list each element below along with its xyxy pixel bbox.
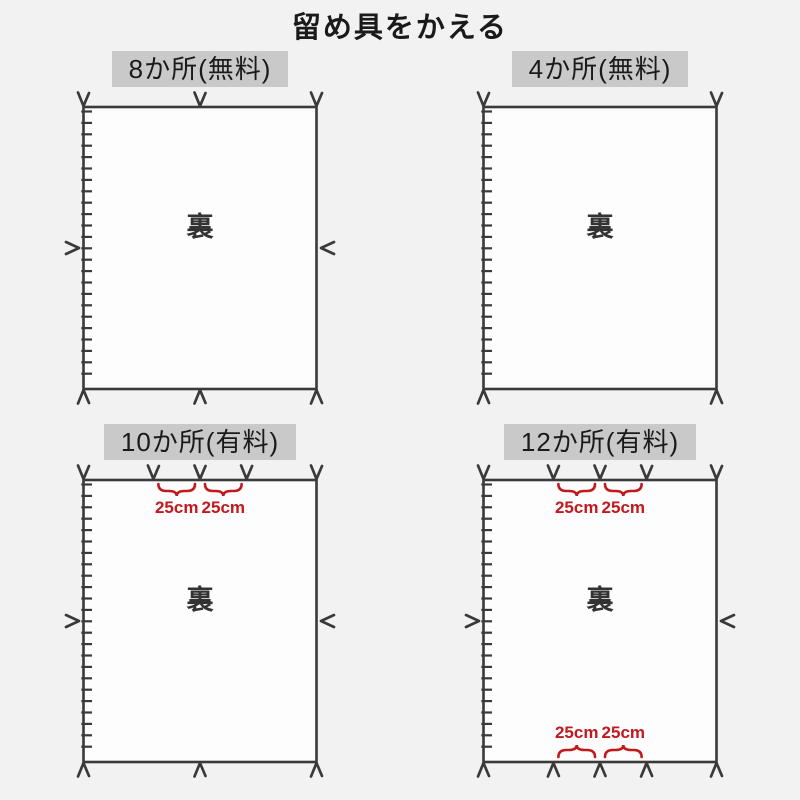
fastener-mark-top bbox=[711, 93, 722, 107]
dimension-label: 25cm bbox=[602, 498, 645, 517]
fastener-mark-left bbox=[66, 242, 79, 254]
panel-diagram-10-places: 裏25cm25cm bbox=[0, 460, 400, 792]
dimension-label: 25cm bbox=[202, 498, 245, 517]
fastener-mark-bottom bbox=[641, 763, 652, 777]
fastener-mark-top bbox=[478, 466, 489, 480]
fastener-mark-bottom bbox=[548, 763, 559, 777]
fastener-mark-bottom bbox=[78, 390, 89, 404]
fastener-mark-bottom bbox=[711, 390, 722, 404]
cover-back-illustration: 裏 bbox=[400, 87, 800, 419]
fastener-mark-top bbox=[711, 466, 722, 480]
back-side-label: 裏 bbox=[586, 211, 615, 242]
page-title: 留め具をかえる bbox=[0, 4, 800, 46]
fastener-mark-top bbox=[78, 466, 89, 480]
fastener-mark-top bbox=[195, 466, 206, 480]
panel-header-12-places: 12か所(有料) bbox=[504, 424, 696, 460]
cover-back-outline bbox=[484, 480, 717, 762]
cover-back-illustration: 裏25cm25cm25cm25cm bbox=[400, 460, 800, 792]
fastener-mark-bottom bbox=[711, 763, 722, 777]
fastener-mark-top bbox=[641, 466, 652, 480]
cover-back-illustration: 裏 bbox=[0, 87, 400, 419]
fastener-mark-bottom bbox=[311, 390, 322, 404]
panel-diagram-12-places: 裏25cm25cm25cm25cm bbox=[400, 460, 800, 792]
panel-header-4-places: 4か所(無料) bbox=[512, 51, 689, 87]
back-side-label: 裏 bbox=[186, 584, 215, 615]
panel-12-places: 12か所(有料) 裏25cm25cm25cm25cm bbox=[400, 418, 800, 796]
panel-diagram-8-places: 裏 bbox=[0, 87, 400, 419]
back-side-label: 裏 bbox=[586, 584, 615, 615]
fastener-mark-top bbox=[311, 93, 322, 107]
cover-back-illustration: 裏25cm25cm bbox=[0, 460, 400, 792]
fastener-mark-top bbox=[241, 466, 252, 480]
fastener-mark-bottom bbox=[195, 763, 206, 777]
panel-10-places: 10か所(有料) 裏25cm25cm bbox=[0, 418, 400, 796]
fastener-mark-bottom bbox=[478, 390, 489, 404]
fastener-mark-bottom bbox=[595, 763, 606, 777]
fastener-mark-top bbox=[148, 466, 159, 480]
cover-back-outline bbox=[84, 480, 317, 762]
fastener-mark-right bbox=[321, 242, 334, 254]
fastener-mark-top bbox=[78, 93, 89, 107]
panel-4-places: 4か所(無料) 裏 bbox=[400, 45, 800, 423]
cover-back-outline bbox=[484, 107, 717, 389]
back-side-label: 裏 bbox=[186, 211, 215, 242]
dimension-label: 25cm bbox=[155, 498, 198, 517]
panel-8-places: 8か所(無料) 裏 bbox=[0, 45, 400, 423]
fastener-mark-top bbox=[311, 466, 322, 480]
fastener-mark-left bbox=[466, 615, 479, 627]
fastener-mark-bottom bbox=[195, 390, 206, 404]
cover-back-outline bbox=[84, 107, 317, 389]
fastener-mark-top bbox=[595, 466, 606, 480]
fastener-mark-bottom bbox=[478, 763, 489, 777]
dimension-label: 25cm bbox=[602, 723, 645, 742]
dimension-label: 25cm bbox=[555, 498, 598, 517]
fastener-mark-top bbox=[195, 93, 206, 107]
panel-header-8-places: 8か所(無料) bbox=[112, 51, 289, 87]
dimension-label: 25cm bbox=[555, 723, 598, 742]
fastener-mark-right bbox=[721, 615, 734, 627]
panel-header-10-places: 10か所(有料) bbox=[104, 424, 296, 460]
fastener-mark-top bbox=[548, 466, 559, 480]
fastener-mark-bottom bbox=[78, 763, 89, 777]
fastener-mark-right bbox=[321, 615, 334, 627]
panel-diagram-4-places: 裏 bbox=[400, 87, 800, 419]
fastener-mark-bottom bbox=[311, 763, 322, 777]
fastener-mark-left bbox=[66, 615, 79, 627]
fastener-mark-top bbox=[478, 93, 489, 107]
